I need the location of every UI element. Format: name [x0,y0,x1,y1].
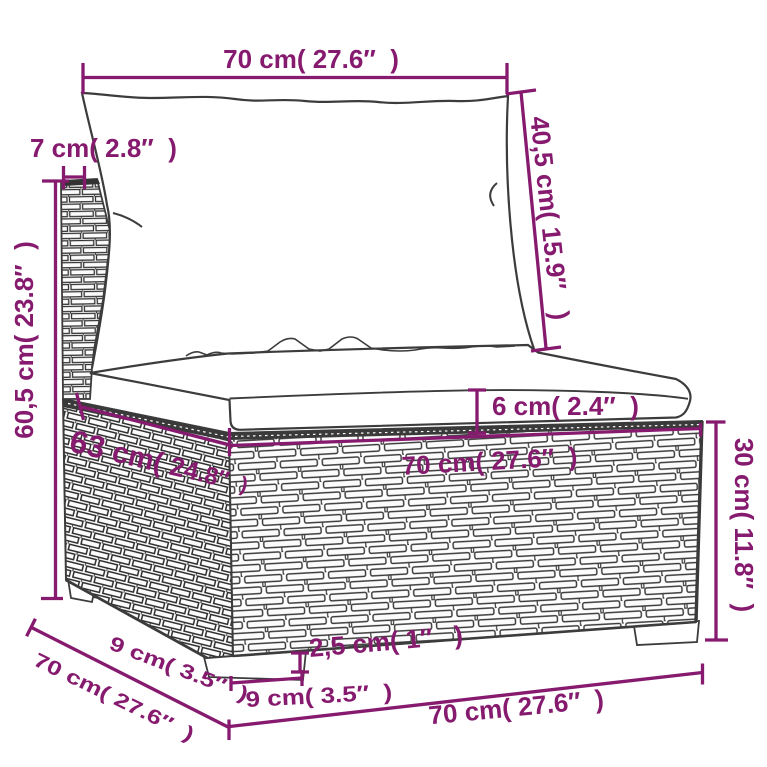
svg-text:30 cm( 11.8″ ): 30 cm( 11.8″ ) [729,438,759,612]
svg-text:60,5 cm( 23.8″ ): 60,5 cm( 23.8″ ) [9,241,39,438]
svg-text:70 cm( 27.6″ ): 70 cm( 27.6″ ) [223,44,399,74]
svg-text:6 cm( 2.4″ ): 6 cm( 2.4″ ) [492,391,639,421]
svg-text:7 cm( 2.8″ ): 7 cm( 2.8″ ) [30,133,177,163]
